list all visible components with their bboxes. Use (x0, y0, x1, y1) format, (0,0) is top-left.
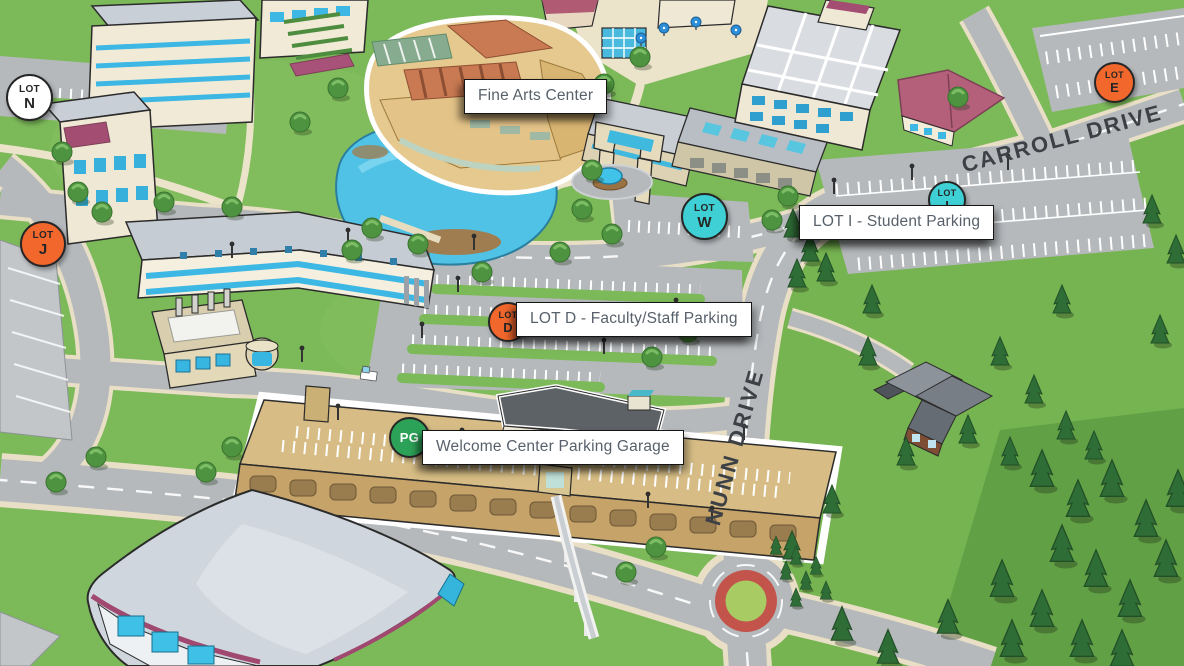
map-label-lot-d-faculty-staff-parking[interactable]: LOT D - Faculty/Staff Parking (516, 302, 752, 337)
marker-lot-e-text: LOT (1105, 71, 1124, 80)
campus-map-canvas[interactable]: NUNN DRIVE CARROLL DRIVE LOT N LOT J LOT… (0, 0, 1184, 666)
marker-lot-j[interactable]: LOT J (20, 221, 66, 267)
marker-lot-w[interactable]: LOT W (681, 193, 728, 240)
marker-lot-n[interactable]: LOT N (6, 74, 53, 121)
map-label-fine-arts-center[interactable]: Fine Arts Center (464, 79, 607, 114)
marker-lot-i-text: LOT (938, 189, 957, 198)
marker-lot-d-text: LOT (499, 311, 518, 320)
marker-lot-w-text: LOT (694, 204, 715, 214)
marker-parking-garage-text: PG (400, 431, 419, 444)
map-label-welcome-center-parking-garage[interactable]: Welcome Center Parking Garage (422, 430, 684, 465)
map-label-lot-i-student-parking[interactable]: LOT I - Student Parking (799, 205, 994, 240)
marker-lot-e[interactable]: LOT E (1094, 62, 1135, 103)
marker-lot-j-text: LOT (33, 231, 54, 241)
roundabout (699, 554, 793, 648)
marker-lot-n-text: LOT (19, 85, 40, 95)
